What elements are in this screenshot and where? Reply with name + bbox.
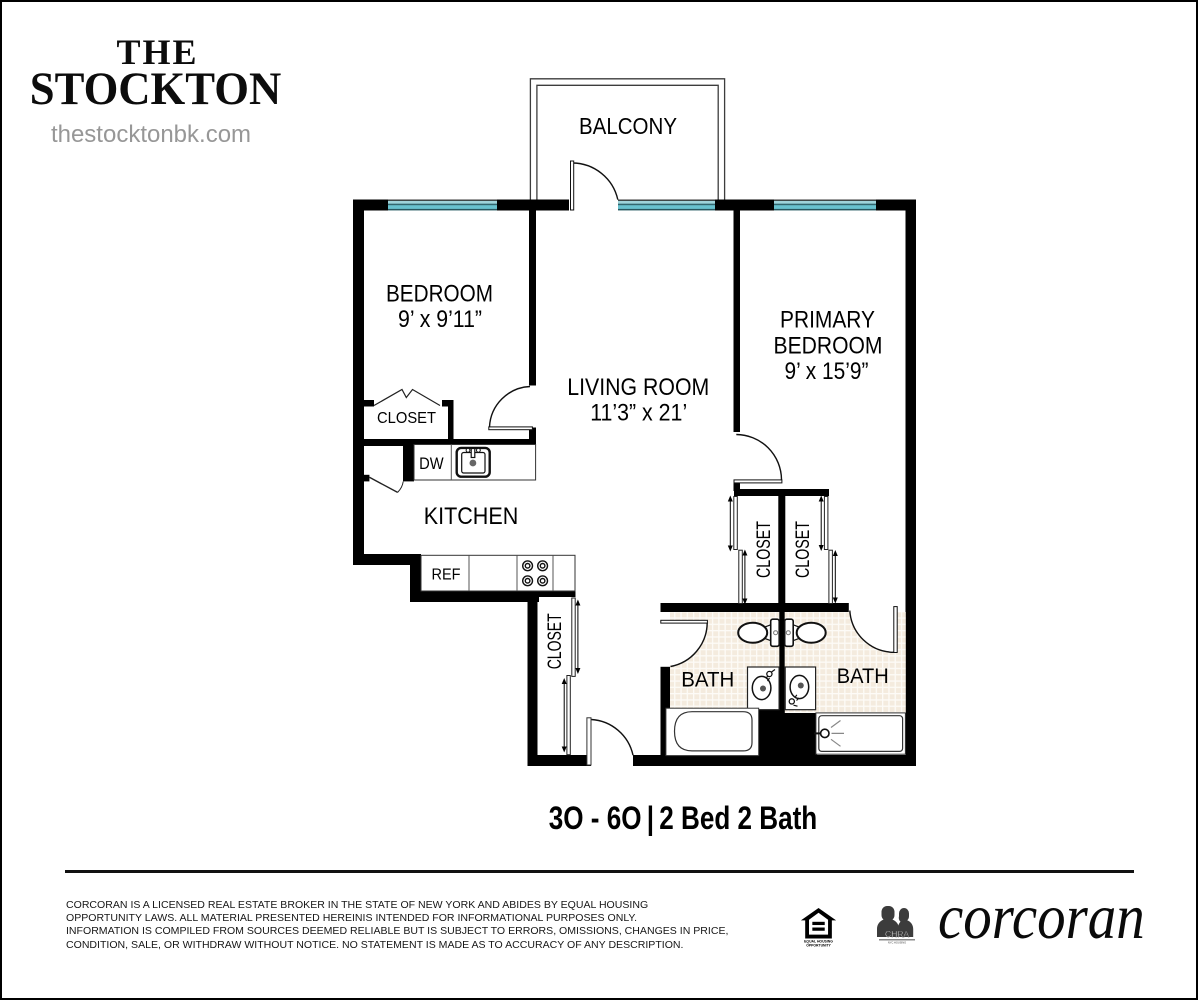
svg-text:PRIMARY: PRIMARY <box>780 307 875 334</box>
svg-text:CLOSET: CLOSET <box>377 410 437 427</box>
svg-text:REF: REF <box>432 566 461 583</box>
svg-text:BATH: BATH <box>837 664 889 688</box>
svg-text:BALCONY: BALCONY <box>579 113 677 139</box>
svg-text:9’ x 9’11”: 9’ x 9’11” <box>398 306 482 333</box>
svg-text:BATH: BATH <box>681 667 734 691</box>
svg-text:BEDROOM: BEDROOM <box>774 333 883 360</box>
svg-text:NYC HOUSING: NYC HOUSING <box>888 941 906 945</box>
svg-text:DW: DW <box>419 454 444 473</box>
svg-text:CHRA: CHRA <box>885 929 909 939</box>
svg-text:OPPORTUNITY: OPPORTUNITY <box>806 944 831 948</box>
svg-text:11’3” x 21’: 11’3” x 21’ <box>590 400 687 427</box>
svg-text:CLOSET: CLOSET <box>753 521 775 578</box>
svg-text:CLOSET: CLOSET <box>544 613 566 669</box>
svg-text:CLOSET: CLOSET <box>792 521 814 578</box>
svg-text:LIVING ROOM: LIVING ROOM <box>567 374 709 401</box>
svg-text:9’ x 15’9”: 9’ x 15’9” <box>785 358 869 385</box>
svg-text:KITCHEN: KITCHEN <box>424 503 519 530</box>
svg-text:BEDROOM: BEDROOM <box>386 281 493 308</box>
